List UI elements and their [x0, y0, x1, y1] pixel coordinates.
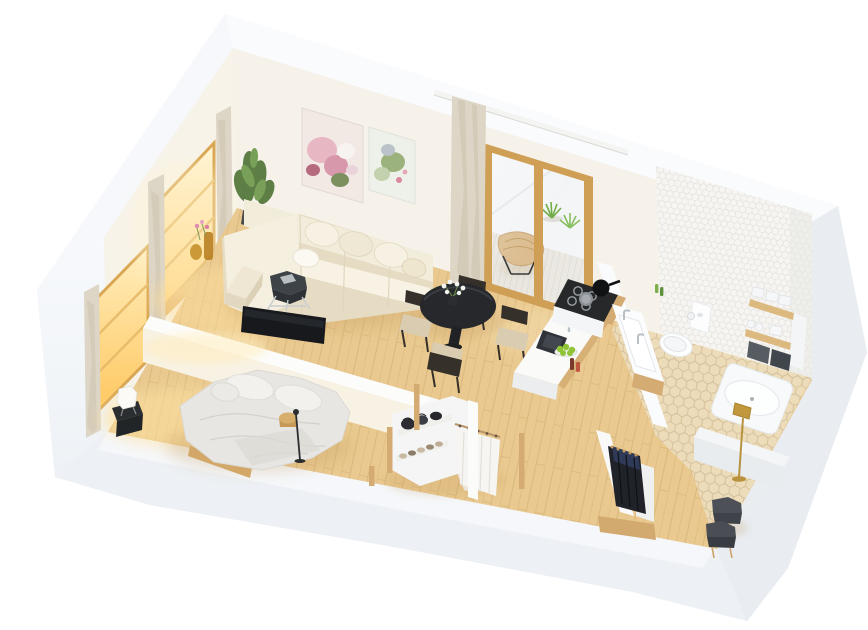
pink-flower [200, 220, 204, 224]
balcony-curtain [450, 96, 486, 292]
tub-drain [750, 397, 754, 401]
flush-button [697, 313, 703, 317]
pink-flower [195, 224, 199, 228]
floorplan-stage [0, 0, 868, 630]
green-wall-art [369, 127, 415, 204]
bottle [570, 358, 574, 370]
divider-glow [143, 332, 267, 364]
lamp-base [732, 476, 746, 482]
amber-vase [190, 244, 202, 260]
rolled-towel [755, 323, 763, 331]
bottle [576, 362, 580, 372]
black-pan [593, 280, 610, 297]
green-bottle [655, 284, 658, 293]
paint-blob [306, 164, 320, 176]
paint-blob [331, 173, 349, 187]
paint-blob [381, 144, 395, 156]
paint-dot [403, 170, 408, 175]
door-stile [534, 162, 543, 306]
paint-blob [337, 143, 355, 159]
table-top [420, 283, 496, 329]
rolled-towel [747, 320, 755, 328]
paint-blob [374, 167, 390, 181]
toilet-paper-roll [688, 313, 695, 320]
wood-side-stool [279, 413, 297, 428]
lamp-base [295, 459, 306, 463]
white-table-lamp [117, 386, 137, 409]
closet-center-panel [468, 400, 478, 500]
paint-dot [396, 177, 402, 183]
pink-flower [205, 225, 209, 229]
apartment-render [0, 0, 868, 630]
stool-side [707, 537, 736, 548]
paint-blob [346, 165, 358, 175]
green-bottle [660, 287, 663, 296]
gray-pan-inner [581, 294, 590, 303]
amber-vase [204, 232, 213, 260]
